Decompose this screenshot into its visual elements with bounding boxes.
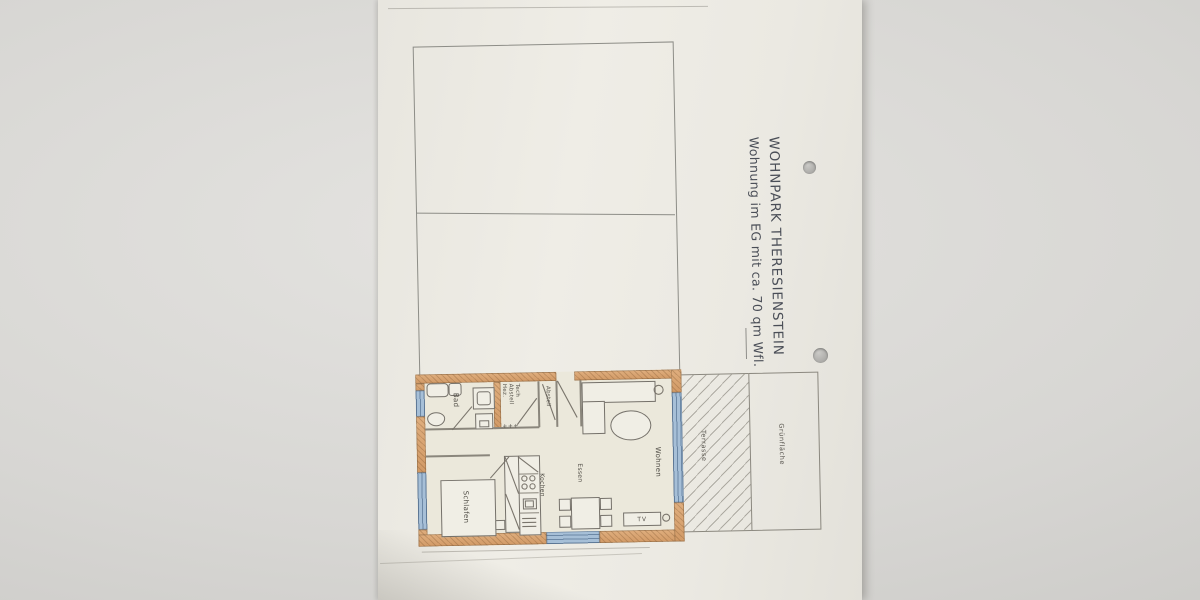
drawing-layer: TV <box>0 0 1200 600</box>
room-label-technik: Hez. Abstell Tech <box>500 384 520 405</box>
hole-punch-bottom <box>813 348 828 363</box>
photo-of-floor-plan-document: TV <box>0 0 1200 600</box>
room-label-schlafen: Schlafen <box>462 491 470 524</box>
green-area-label: Grünfläche <box>777 423 786 465</box>
building-outline <box>413 41 681 376</box>
apartment-floor-plan: TV <box>415 369 684 546</box>
radiator-symbol: +++ <box>502 423 519 430</box>
building-divider-line <box>416 213 675 216</box>
room-label-abstell: Abstell <box>544 386 551 407</box>
room-label-wohnen: Wohnen <box>654 447 662 477</box>
room-label-kochen: Kochen <box>538 473 545 497</box>
terrace-label: Terrasse <box>699 430 708 462</box>
room-label-essen: Essen <box>576 463 583 482</box>
dimension-line <box>422 547 650 553</box>
hole-punch-top <box>803 161 816 174</box>
title-block: WOHNPARK THERESIENSTEIN Wohnung im EG mi… <box>745 136 788 367</box>
terrace-area: Terrasse <box>681 373 751 532</box>
room-label-bad: Bad <box>452 393 459 408</box>
green-area: Grünfläche <box>748 372 821 531</box>
title-underline <box>745 328 747 359</box>
technik-line-3: Tech <box>513 384 520 405</box>
